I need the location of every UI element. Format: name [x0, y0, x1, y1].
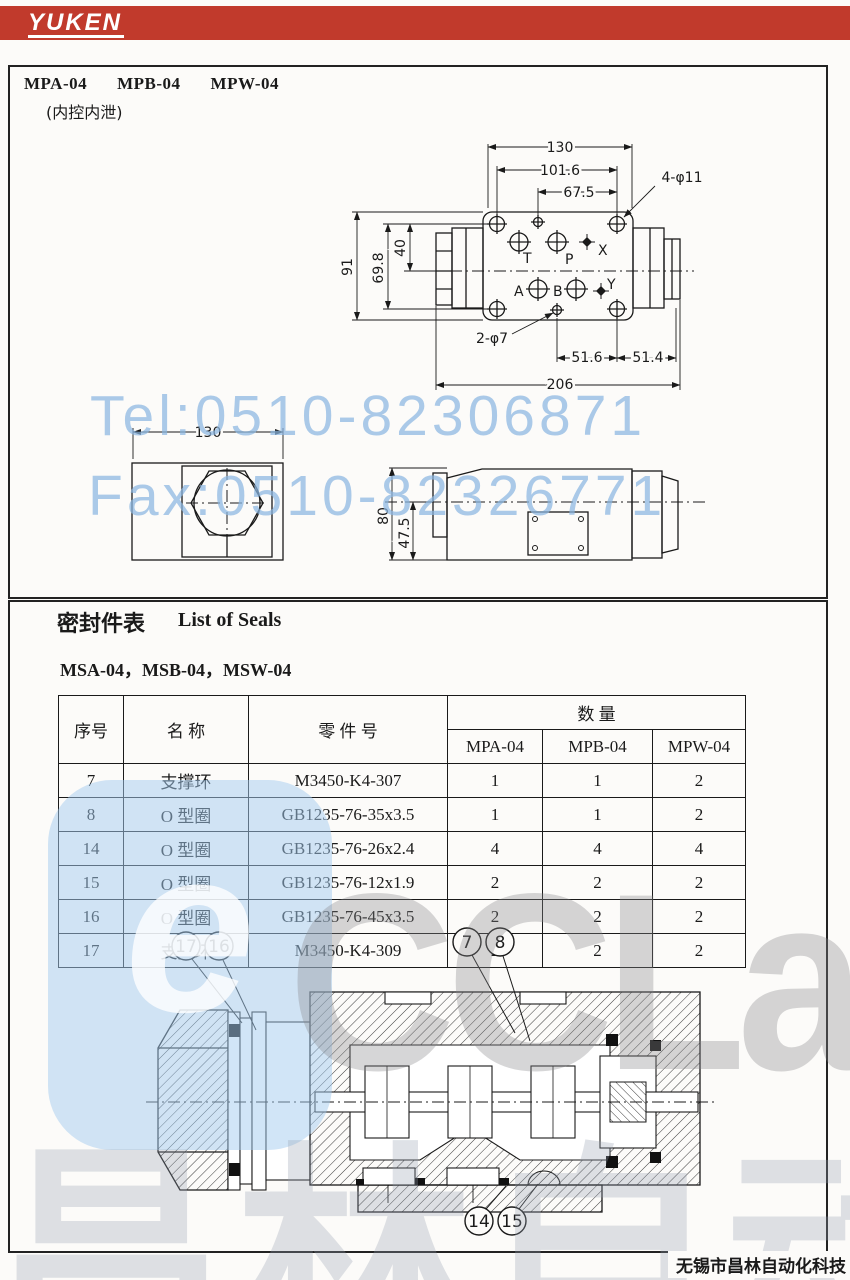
end-view-drawing: 130 [120, 420, 300, 585]
port-label-a: A [514, 284, 524, 300]
dim-91: 91 [340, 258, 356, 276]
top-notch [385, 992, 431, 1004]
table-cell: 15 [59, 866, 124, 900]
header-bar: YUKEN [0, 6, 850, 40]
table-cell: 17 [59, 934, 124, 968]
mount-pad-holes [533, 517, 584, 551]
table-cell: O 型圈 [124, 866, 249, 900]
table-cell: 4 [543, 832, 653, 866]
callout-15: 15 [501, 1212, 523, 1232]
yuken-logo: YUKEN [28, 9, 122, 37]
table-cell: 16 [59, 900, 124, 934]
seal-cap-bottom [650, 1152, 661, 1163]
gland-rings [228, 1012, 310, 1190]
dim-101-6: 101.6 [540, 163, 580, 179]
table-cell: 4 [448, 832, 543, 866]
x-port-marker [582, 237, 592, 247]
seals-model-line: MSA-04，MSB-04，MSW-04 [60, 656, 291, 682]
table-cell: 2 [543, 866, 653, 900]
table-row: 7支撑环M3450-K4-307112 [59, 764, 746, 798]
model-name: MPB-04 [117, 74, 180, 93]
table-row: 14O 型圈GB1235-76-26x2.4444 [59, 832, 746, 866]
seal-7-8 [606, 1034, 618, 1046]
callout-8: 8 [495, 933, 506, 953]
bolt-holes [487, 214, 627, 319]
dim-47-5: 47.5 [397, 517, 413, 548]
dim-2-phi7: 2-φ7 [476, 331, 508, 347]
col-part: 零 件 号 [249, 696, 448, 764]
port-label-t: T [522, 251, 532, 267]
table-cell: 2 [653, 866, 746, 900]
logo-underline [28, 35, 124, 38]
table-cell: 2 [653, 764, 746, 798]
col-qty: 数 量 [448, 696, 746, 730]
callout-14: 14 [468, 1212, 490, 1232]
seal-15 [499, 1178, 509, 1185]
callout-7: 7 [462, 933, 473, 953]
callout-17: 17 [175, 937, 197, 957]
dim-40: 40 [393, 239, 409, 257]
port-label-p: P [565, 252, 573, 268]
table-cell: O 型圈 [124, 798, 249, 832]
table-cell: GB1235-76-26x2.4 [249, 832, 448, 866]
datasheet-page: YUKEN MPA-04MPB-04MPW-04 (内控内泄) [0, 0, 850, 1280]
y-port-marker [596, 286, 606, 296]
valve-body-outline [436, 212, 680, 320]
seal-14 [415, 1178, 425, 1185]
control-note: (内控内泄) [46, 99, 123, 123]
model-list: MPA-04MPB-04MPW-04 [24, 74, 309, 94]
col-seq: 序号 [59, 696, 124, 764]
top-notch [520, 992, 566, 1004]
port-label-y: Y [606, 277, 616, 293]
top-view-drawing: 130 101.6 67.5 4-φ11 91 69.8 40 2-φ7 51.… [330, 135, 720, 400]
table-row: 8O 型圈GB1235-76-35x3.5112 [59, 798, 746, 832]
table-cell: 2 [448, 866, 543, 900]
port-label-x: X [598, 243, 608, 259]
end-view-centerlines [186, 468, 268, 540]
dim-130: 130 [195, 425, 222, 441]
callout-16: 16 [208, 937, 230, 957]
model-name: MPW-04 [211, 74, 279, 93]
footer-company: 无锡市昌林自动化科技 [668, 1251, 850, 1278]
seals-title-en: List of Seals [178, 609, 281, 632]
table-cell: 1 [543, 764, 653, 798]
col-mpw04: MPW-04 [653, 730, 746, 764]
dim-51-4: 51.4 [632, 350, 663, 366]
dim-51-6: 51.6 [571, 350, 602, 366]
dim-130: 130 [547, 140, 574, 156]
table-cell: M3450-K4-307 [249, 764, 448, 798]
extension-lines [352, 144, 680, 390]
dim-206: 206 [547, 377, 574, 393]
col-name: 名 称 [124, 696, 249, 764]
table-cell: 1 [448, 764, 543, 798]
end-view-outline [132, 463, 283, 560]
side-view-drawing: 80 47.5 [380, 435, 710, 595]
dim-4-phi11: 4-φ11 [661, 170, 702, 186]
cross-section-drawing: 17 16 7 8 14 15 [140, 920, 720, 1250]
seals-title-cn: 密封件表 [57, 606, 145, 638]
seal-17-16-bottom [229, 1163, 240, 1176]
seal-cap-top [650, 1040, 661, 1051]
side-view-outline [433, 469, 678, 560]
col-mpb04: MPB-04 [543, 730, 653, 764]
table-header-row: 序号 名 称 零 件 号 数 量 [59, 696, 746, 730]
table-cell: 7 [59, 764, 124, 798]
table-cell: 1 [543, 798, 653, 832]
dim-80: 80 [376, 507, 392, 525]
table-cell: GB1235-76-12x1.9 [249, 866, 448, 900]
table-cell: GB1235-76-35x3.5 [249, 798, 448, 832]
table-cell: 8 [59, 798, 124, 832]
table-cell: 支撑环 [124, 764, 249, 798]
model-name: MPA-04 [24, 74, 87, 93]
table-cell: 4 [653, 832, 746, 866]
dim-69-8: 69.8 [371, 252, 387, 283]
table-cell: O 型圈 [124, 832, 249, 866]
table-cell: 14 [59, 832, 124, 866]
seal-17-16-top [229, 1024, 240, 1037]
table-row: 15O 型圈GB1235-76-12x1.9222 [59, 866, 746, 900]
hex-nut [158, 1010, 228, 1190]
table-cell: 2 [653, 798, 746, 832]
table-cell: 1 [448, 798, 543, 832]
seal-bottom-right [606, 1156, 618, 1168]
col-mpa04: MPA-04 [448, 730, 543, 764]
port-label-b: B [553, 284, 563, 300]
dim-67-5: 67.5 [563, 185, 594, 201]
